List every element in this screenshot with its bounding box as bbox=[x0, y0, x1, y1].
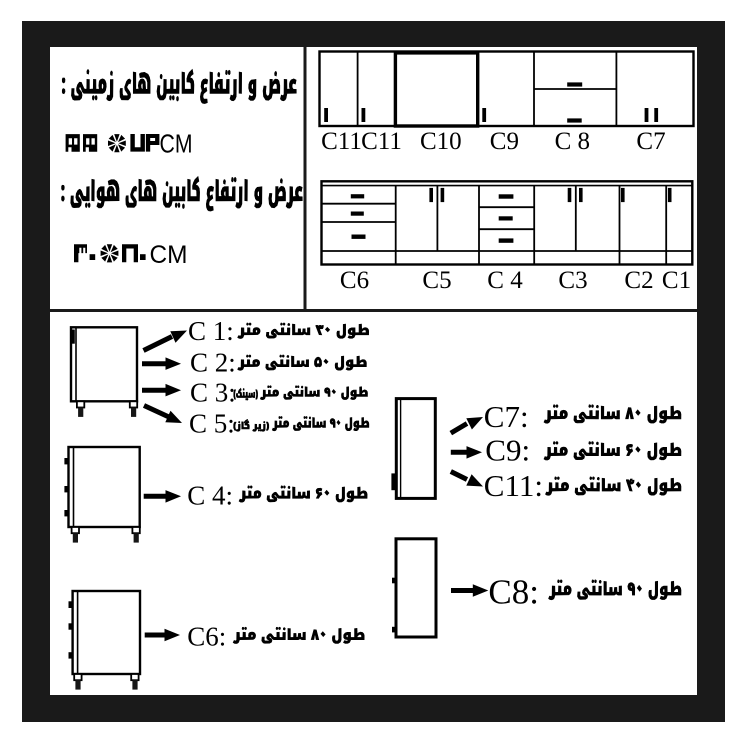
svg-text:C 8: C 8 bbox=[555, 128, 590, 155]
svg-text:C 5:: C 5: bbox=[189, 409, 235, 439]
svg-text:C 4:: C 4: bbox=[187, 481, 233, 511]
svg-text:C 2:: C 2: bbox=[190, 348, 236, 378]
svg-text:C10: C10 bbox=[420, 128, 462, 155]
svg-text:C7:: C7: bbox=[484, 399, 529, 434]
svg-text:C11: C11 bbox=[321, 128, 362, 155]
svg-text:C5: C5 bbox=[422, 267, 451, 294]
svg-text:C9:: C9: bbox=[485, 433, 530, 468]
svg-text:C2: C2 bbox=[624, 267, 653, 294]
svg-text:C9: C9 bbox=[490, 128, 519, 155]
svg-text:C 1:: C 1: bbox=[188, 316, 234, 346]
svg-text:C6:: C6: bbox=[187, 622, 226, 652]
svg-text:C1: C1 bbox=[662, 267, 691, 294]
svg-text:C8:: C8: bbox=[488, 573, 539, 612]
svg-text:C 4: C 4 bbox=[487, 267, 523, 294]
svg-text:C 3:: C 3: bbox=[190, 377, 236, 407]
svg-text:CM: CM bbox=[160, 129, 193, 159]
svg-text:C7: C7 bbox=[636, 128, 665, 155]
svg-text:CM: CM bbox=[150, 241, 188, 269]
svg-text:C6: C6 bbox=[340, 267, 369, 294]
svg-text:C11: C11 bbox=[361, 128, 402, 155]
svg-text:C11:: C11: bbox=[484, 468, 543, 503]
svg-text:C3: C3 bbox=[558, 267, 587, 294]
